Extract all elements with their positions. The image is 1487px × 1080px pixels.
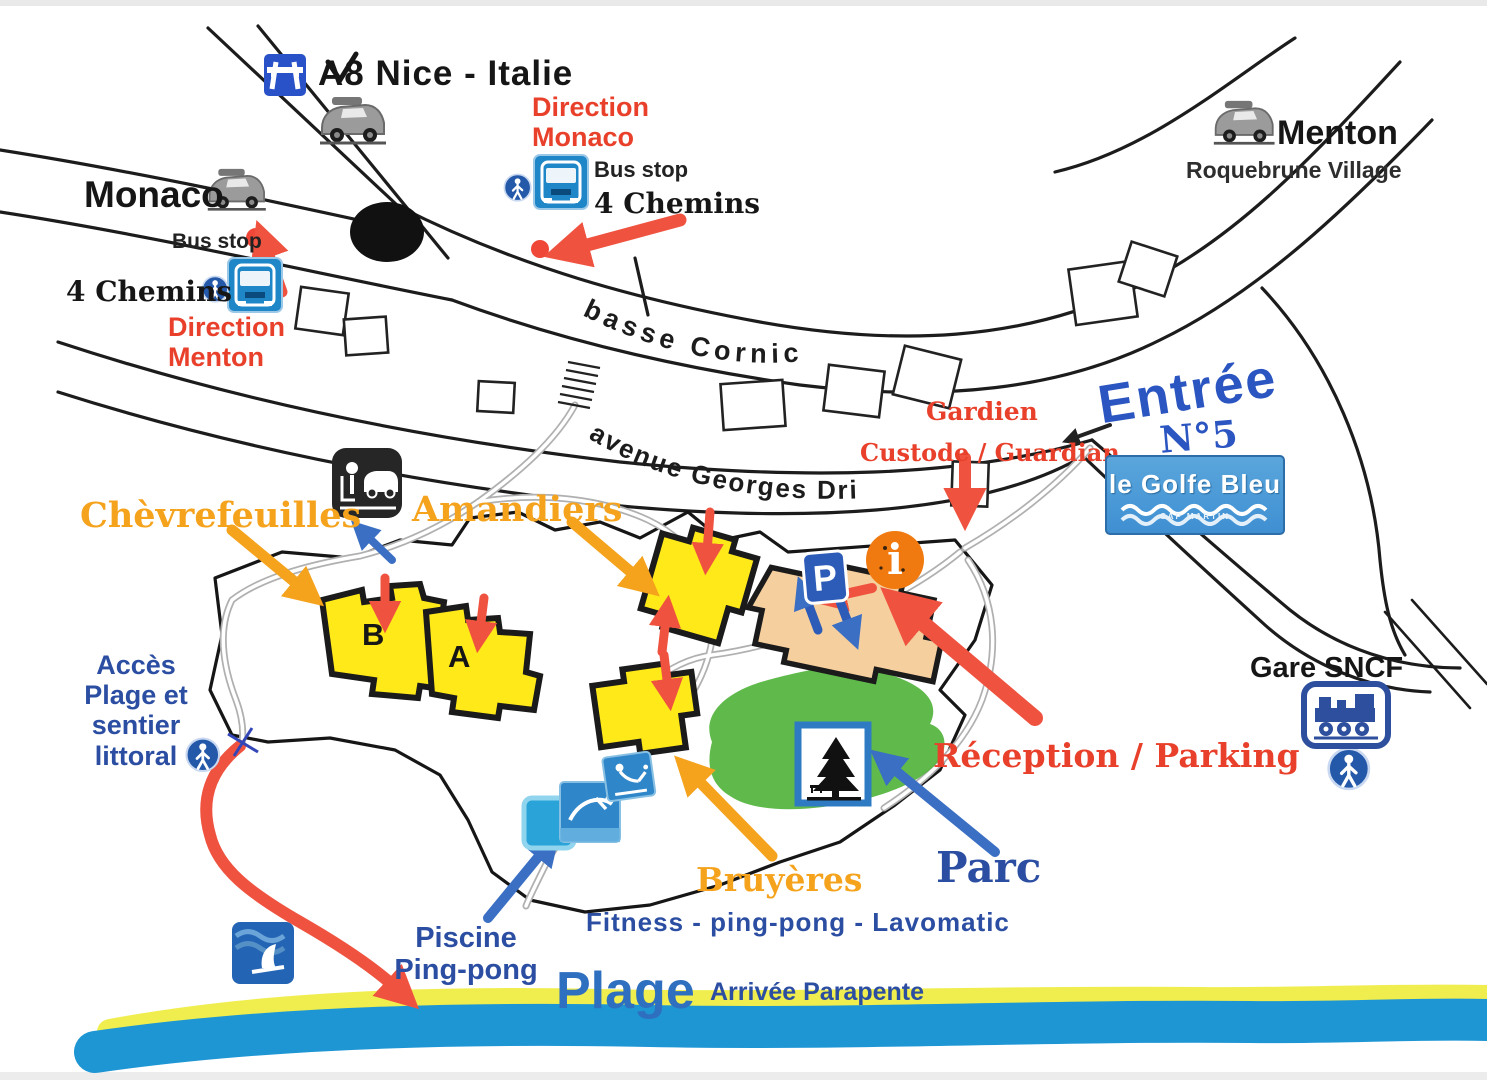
pedestrian-icon-top: [504, 174, 530, 200]
parc-label: Parc: [936, 844, 1041, 891]
arrivee-parapente-label: Arrivée Parapente: [710, 978, 924, 1006]
arrow-bus-stop-top: [576, 220, 680, 248]
roquebrune-village-label: Roquebrune Village: [1186, 158, 1402, 184]
arrow-parc: [890, 766, 995, 852]
direction-menton-label: Direction Menton: [168, 312, 285, 372]
windsurf-icon: [232, 922, 294, 984]
arrow-amandiers-top: [707, 512, 710, 552]
info-letter: i: [887, 535, 903, 584]
bus-stop-dot-top: [531, 240, 549, 258]
amandiers-label: Amandiers: [412, 490, 623, 529]
gardien-label: Gardien: [926, 398, 1038, 426]
car-icon-menton: [1214, 101, 1275, 143]
arrow-between-down: [664, 655, 668, 688]
sea-band: [95, 1020, 1487, 1052]
pingpong-icon: [602, 751, 656, 801]
four-chemins-left-label: 4 Chemins: [66, 276, 232, 307]
parking-sign-icon: P: [802, 550, 848, 603]
side-lane: [635, 258, 648, 315]
roundabout-dot: [350, 202, 424, 262]
chevrefeuilles-label: Chèvrefeuilles: [80, 496, 361, 535]
arrow-building-a: [480, 598, 484, 630]
pedestrian-icon-gare: [1329, 749, 1369, 789]
reception-parking-label: Réception / Parking: [933, 738, 1300, 775]
acces-plage-label: Accès Plage et sentier littoral: [66, 650, 206, 771]
access-map: P i: [0, 0, 1487, 1080]
crossing-hatch: [558, 362, 600, 408]
piscine-label: Piscine Ping-pong: [376, 922, 556, 987]
car-icon-a8: [320, 97, 386, 143]
bus-stop-icon-left: [228, 258, 282, 312]
four-chemins-top-label: 4 Chemins: [594, 188, 760, 219]
train-icon: [1304, 684, 1388, 746]
menton-label: Menton: [1277, 114, 1398, 152]
logo-subtitle: CAP MARTIN: [1160, 512, 1230, 521]
building-a-label: A: [448, 640, 470, 675]
direction-monaco-label: Direction Monaco: [532, 92, 649, 152]
bus-stop-left-label: Bus stop: [172, 230, 262, 254]
golfe-bleu-logo: le Golfe Bleu CAP MARTIN: [1105, 455, 1285, 535]
basse-corniche-edge: [1055, 38, 1295, 172]
monaco-label: Monaco: [84, 174, 224, 215]
fitness-label: Fitness - ping-pong - Lavomatic: [586, 908, 1010, 937]
a8-label: A8 Nice - Italie: [318, 54, 573, 93]
logo-name: le Golfe Bleu: [1109, 469, 1281, 500]
bus-stop-top-label: Bus stop: [594, 158, 688, 183]
bus-stop-icon-top: [534, 155, 588, 209]
park-icon: [798, 725, 868, 803]
plage-label: Plage: [556, 962, 695, 1020]
building-b-label: B: [362, 618, 384, 653]
bruyeres-label: Bruyères: [696, 862, 862, 899]
parking-letter: P: [811, 556, 838, 599]
gare-sncf-label: Gare SNCF: [1250, 652, 1403, 684]
info-icon: i: [866, 531, 924, 589]
custode-guardian-label: Custode / Guardian: [860, 440, 1120, 467]
arrow-between-up: [662, 618, 666, 652]
motorway-icon: [264, 54, 306, 96]
